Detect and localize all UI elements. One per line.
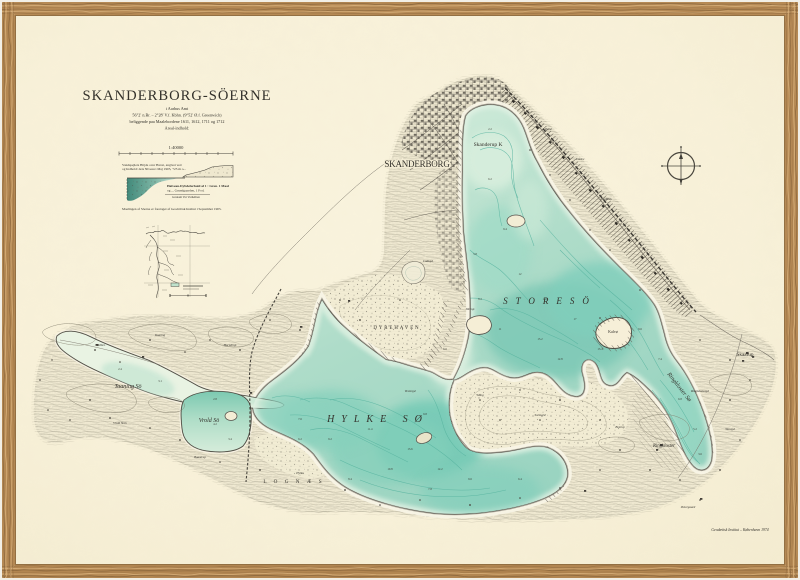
svg-text:Skanderup K: Skanderup K [474, 142, 503, 148]
svg-text:1:40000: 1:40000 [169, 145, 185, 150]
svg-text:6.2: 6.2 [298, 437, 302, 441]
svg-text:7.8: 7.8 [428, 487, 432, 491]
svg-text:Forlev: Forlev [575, 157, 585, 161]
svg-text:Areal-indhold:: Areal-indhold: [165, 126, 190, 131]
svg-text:Baastrup: Baastrup [194, 455, 206, 459]
svg-text:Illerup: Illerup [465, 307, 475, 311]
svg-text:7.4: 7.4 [658, 357, 662, 361]
svg-text:Ringklostergd: Ringklostergd [690, 389, 709, 393]
svg-text:2.2: 2.2 [488, 127, 492, 131]
svg-text:6.8: 6.8 [678, 397, 682, 401]
svg-text:9.2: 9.2 [328, 437, 332, 441]
svg-text:6.4: 6.4 [518, 477, 522, 481]
svg-text:Sortegrd: Sortegrd [534, 413, 545, 417]
svg-text:Vestergd: Vestergd [405, 389, 416, 393]
svg-text:13.6: 13.6 [407, 447, 413, 451]
svg-text:Fuldbro: Fuldbro [94, 343, 106, 347]
svg-text:Brørup: Brørup [615, 425, 625, 429]
svg-text:12.8: 12.8 [557, 357, 563, 361]
svg-text:Hvolbæk: Hvolbæk [599, 197, 612, 201]
svg-text:L O G N Æ S: L O G N Æ S [263, 479, 324, 485]
svg-text:8.2: 8.2 [478, 297, 482, 301]
svg-text:3.6: 3.6 [698, 452, 702, 456]
svg-text:8.4: 8.4 [348, 477, 352, 481]
svg-text:HYLKE SØ: HYLKE SØ [326, 414, 429, 425]
svg-text:Ringkloster: Ringkloster [652, 444, 675, 449]
svg-text:3.1: 3.1 [158, 379, 162, 383]
svg-text:STORESÖ: STORESÖ [503, 296, 597, 306]
svg-text:Skaarup: Skaarup [737, 352, 754, 358]
svg-text:Vrold: Vrold [545, 127, 552, 131]
svg-text:Taaning: Taaning [155, 333, 166, 337]
svg-text:Østergaard: Østergaard [680, 505, 696, 509]
svg-text:2.8: 2.8 [213, 397, 217, 401]
svg-text:Taaning Sö: Taaning Sö [115, 384, 142, 390]
svg-text:Ladegd: Ladegd [422, 259, 433, 263]
svg-text:12.2: 12.2 [437, 467, 443, 471]
svg-text:Vrold Skov: Vrold Skov [113, 421, 127, 425]
svg-text:6.2: 6.2 [488, 177, 492, 181]
svg-text:SKANDERBORG-SÖERNE: SKANDERBORG-SÖERNE [82, 87, 271, 104]
svg-text:7.6: 7.6 [298, 417, 302, 421]
svg-text:11: 11 [499, 327, 502, 331]
svg-text:DYREHAVEN: DYREHAVEN [373, 326, 420, 331]
svg-text:11.4: 11.4 [367, 427, 373, 431]
svg-text:5.2: 5.2 [693, 427, 697, 431]
svg-text:12: 12 [519, 272, 523, 276]
svg-text:56°2′ n.Br. – 2°28′ V.f. Kbhn.: 56°2′ n.Br. – 2°28′ V.f. Kbhn. (9°52′ Ø.… [132, 113, 222, 118]
svg-text:2.4: 2.4 [118, 367, 122, 371]
svg-text:Hylke: Hylke [295, 471, 304, 475]
svg-text:9.4: 9.4 [503, 227, 507, 231]
svg-text:Høiveau-Dybdeforhold af 1 : Gr: Høiveau-Dybdeforhold af 1 : Gron. 1 Maal [167, 184, 229, 188]
svg-text:Maalingen af Söerne er foretag: Maalingen af Söerne er foretaget af Geod… [122, 207, 222, 211]
svg-text:Skovgd: Skovgd [725, 427, 735, 431]
svg-text:17: 17 [574, 317, 578, 321]
svg-text:SKANDERBORG: SKANDERBORG [384, 159, 450, 169]
svg-text:Grunam Var Varheilten: Grunam Var Varheilten [172, 195, 200, 199]
svg-text:Vrold Sö: Vrold Sö [199, 418, 220, 424]
svg-text:9.6: 9.6 [468, 477, 472, 481]
svg-text:3.4: 3.4 [228, 437, 232, 441]
svg-text:i Aarhus Amt: i Aarhus Amt [166, 106, 189, 111]
svg-text:Geodætisk Institut – København: Geodætisk Institut – København 1974 [711, 528, 768, 532]
svg-text:Horndrup: Horndrup [223, 343, 237, 347]
svg-text:6.6: 6.6 [443, 347, 447, 351]
svg-text:9.6: 9.6 [638, 327, 642, 331]
svg-text:5.8: 5.8 [473, 252, 477, 256]
svg-text:15.2: 15.2 [537, 337, 543, 341]
svg-text:10.8: 10.8 [387, 467, 393, 471]
svg-text:Kalvø: Kalvø [608, 329, 618, 334]
svg-text:Yding: Yding [476, 393, 484, 397]
